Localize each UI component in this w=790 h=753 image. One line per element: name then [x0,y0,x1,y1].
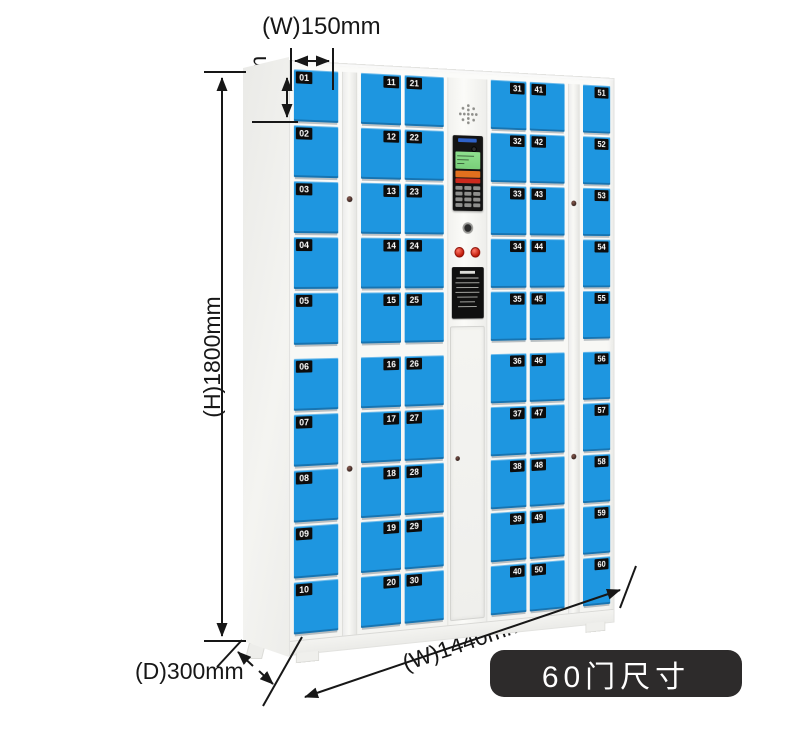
locker-door-53: 53 [583,188,610,236]
door-number-plate: 56 [595,353,609,364]
locker-door-52: 52 [583,136,610,185]
door-number-plate: 38 [510,460,525,472]
door-number-plate: 47 [532,407,546,419]
door-number-plate: 05 [296,295,312,307]
locker-door-31: 31 [491,80,527,131]
locker-door-11: 11 [361,73,401,126]
locker-door-13: 13 [361,183,401,234]
locker-door-19: 19 [361,519,401,573]
door-number-plate: 54 [595,241,609,252]
locker-door-44: 44 [530,239,565,288]
size-badge: 60门尺寸 [490,650,742,697]
column-6: 51525354555657585960 [583,85,610,612]
cabinet-depth-dimension-label: (D)300mm [135,658,244,685]
door-number-plate: 27 [407,412,423,424]
door-number-plate: 17 [383,413,399,425]
locker-door-39: 39 [491,511,527,563]
cabinet-side-panel [243,57,289,657]
door-number-plate: 23 [407,186,423,198]
door-number-plate: 02 [296,127,312,140]
lock-strip-2 [568,84,580,614]
camera-icon [455,144,480,152]
locker-door-42: 42 [530,134,565,184]
door-number-plate: 09 [296,527,312,540]
locker-door-28: 28 [405,463,444,516]
emergency-buttons [455,247,481,258]
locker-door-10: 10 [294,579,338,635]
locker-door-23: 23 [405,184,444,235]
cabinet-foot [585,622,605,633]
locker-door-50: 50 [530,560,565,612]
door-number-plate: 40 [510,565,525,578]
keyhole-icon [462,222,473,234]
locker-door-36: 36 [491,353,527,403]
locker-door-08: 08 [294,468,338,522]
door-number-plate: 18 [383,467,399,480]
locker-door-47: 47 [530,404,565,454]
locker-door-46: 46 [530,352,565,402]
door-number-plate: 22 [407,131,423,143]
door-columns: 0102030405060708091011121314151617181920… [290,61,613,641]
service-door [450,326,485,621]
locker-dimension-diagram: 0102030405060708091011121314151617181920… [0,0,790,753]
door-number-plate: 37 [510,408,525,420]
door-number-plate: 28 [407,466,423,478]
door-number-plate: 53 [595,190,609,201]
door-number-plate: 60 [595,558,609,570]
locker-door-25: 25 [405,292,444,343]
door-number-plate: 10 [296,583,312,596]
locker-door-12: 12 [361,128,401,180]
door-number-plate: 31 [510,83,525,95]
lock-strip-1 [342,72,357,636]
door-number-plate: 16 [383,358,399,370]
door-number-plate: 46 [532,355,546,367]
locker-door-56: 56 [583,351,610,400]
door-number-plate: 06 [296,360,312,372]
door-number-plate: 39 [510,513,525,525]
card-reader [455,178,480,183]
locker-door-27: 27 [405,409,444,461]
locker-door-32: 32 [491,133,527,183]
door-number-plate: 34 [510,241,525,252]
locker-door-35: 35 [491,291,527,340]
locker-door-37: 37 [491,406,527,457]
door-number-plate: 36 [510,355,525,367]
locker-door-17: 17 [361,411,401,464]
scan-window [455,171,480,178]
door-number-plate: 20 [383,576,399,589]
column-5: 41424344454647484950 [530,82,565,617]
door-number-plate: 11 [383,76,399,88]
service-keyhole-icon [455,456,459,461]
door-number-plate: 49 [532,511,546,523]
door-number-plate: 08 [296,472,312,485]
locker-door-14: 14 [361,238,401,289]
speaker-icon [456,101,479,127]
door-number-plate: 52 [595,138,609,150]
locker-door-02: 02 [294,125,338,178]
locker-door-09: 09 [294,524,338,579]
door-number-plate: 51 [595,87,609,99]
locker-door-59: 59 [583,505,610,555]
door-number-plate: 29 [407,520,423,533]
locker-door-07: 07 [294,413,338,467]
locker-door-20: 20 [361,574,401,628]
locker-door-03: 03 [294,181,338,233]
locker-door-26: 26 [405,355,444,406]
locker-door-60: 60 [583,556,610,606]
locker-door-48: 48 [530,456,565,507]
cabinet-height-dimension-label: (H)1800mm [199,282,225,432]
locker-door-34: 34 [491,239,527,288]
locker-door-55: 55 [583,291,610,339]
locker-door-49: 49 [530,508,565,559]
locker-door-04: 04 [294,237,338,289]
door-number-plate: 44 [532,241,546,252]
column-1: 01020304050607080910 [294,69,338,640]
door-number-plate: 33 [510,188,525,200]
instruction-sticker [451,267,483,319]
locker-door-06: 06 [294,358,338,411]
locker-door-33: 33 [491,186,527,236]
door-number-plate: 21 [407,77,423,89]
lcd-screen [455,151,480,169]
door-number-plate: 45 [532,293,546,304]
control-panel [452,135,482,211]
keypad [455,186,480,207]
door-number-plate: 58 [595,456,609,468]
door-number-plate: 35 [510,293,525,304]
column-4: 31323334353637383940 [491,80,527,621]
door-number-plate: 59 [595,507,609,519]
column-2: 11121314151617181920 [361,73,401,634]
locker-door-22: 22 [405,129,444,180]
locker-door-18: 18 [361,465,401,518]
door-number-plate: 04 [296,239,312,251]
door-number-plate: 57 [595,404,609,416]
locker-door-41: 41 [530,82,565,132]
door-width-dimension-label: (W)150mm [262,13,381,41]
door-number-plate: 07 [296,416,312,429]
door-number-plate: 24 [407,240,423,252]
door-number-plate: 48 [532,459,546,471]
door-number-plate: 30 [407,574,423,587]
door-number-plate: 32 [510,135,525,147]
locker-door-58: 58 [583,454,610,503]
locker-door-43: 43 [530,187,565,236]
door-number-plate: 19 [383,521,399,534]
locker-door-57: 57 [583,403,610,452]
locker-door-40: 40 [491,563,527,615]
door-number-plate: 50 [532,563,546,575]
locker-door-01: 01 [294,69,338,123]
locker-door-15: 15 [361,292,401,343]
door-number-plate: 14 [383,240,399,252]
door-number-plate: 42 [532,136,546,148]
door-number-plate: 03 [296,183,312,195]
cabinet-foot [296,651,319,663]
door-number-plate: 26 [407,358,423,370]
locker-door-05: 05 [294,293,338,345]
locker-door-24: 24 [405,238,444,288]
door-number-plate: 15 [383,294,399,306]
column-3: 21222324252627282930 [405,75,444,629]
locker-door-30: 30 [405,570,444,624]
locker-door-45: 45 [530,291,565,340]
brand-label [458,138,477,143]
locker-door-38: 38 [491,458,527,509]
locker-door-16: 16 [361,356,401,408]
locker-door-21: 21 [405,75,444,127]
door-number-plate: 55 [595,293,609,304]
door-number-plate: 25 [407,294,423,306]
locker-door-54: 54 [583,239,610,287]
door-number-plate: 12 [383,131,399,143]
control-column [447,77,487,625]
door-number-plate: 43 [532,189,546,201]
door-number-plate: 13 [383,185,399,197]
locker-door-29: 29 [405,516,444,569]
door-number-plate: 41 [532,84,546,96]
door-number-plate: 01 [296,71,312,84]
locker-cabinet: 0102030405060708091011121314151617181920… [289,60,614,656]
locker-door-51: 51 [583,85,610,134]
